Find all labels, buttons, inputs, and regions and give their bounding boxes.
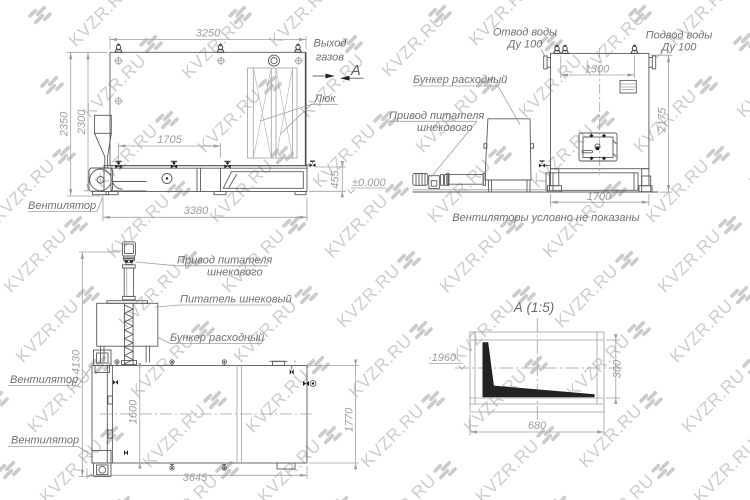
svg-text:3250: 3250 <box>196 28 221 40</box>
svg-text:2350: 2350 <box>59 111 71 137</box>
svg-text:Вентилятор: Вентилятор <box>28 200 96 212</box>
svg-text:2175: 2175 <box>657 107 669 133</box>
svg-text:1700: 1700 <box>587 191 612 203</box>
svg-text:Выход: Выход <box>313 38 346 50</box>
svg-text:Привод питателя: Привод питателя <box>177 255 272 267</box>
svg-text:±0.000: ±0.000 <box>352 177 386 189</box>
svg-text:1770: 1770 <box>344 407 356 432</box>
svg-text:680: 680 <box>528 420 547 432</box>
svg-text:Отвод воды: Отвод воды <box>493 27 557 39</box>
svg-text:шнекового: шнекового <box>207 267 263 279</box>
svg-text:Привод питателя: Привод питателя <box>389 110 484 122</box>
svg-text:А (1:5): А (1:5) <box>513 300 555 315</box>
svg-text:Вентилятор: Вентилятор <box>11 435 79 447</box>
svg-text:300: 300 <box>612 359 624 378</box>
svg-text:Бункер расходный: Бункер расходный <box>170 332 264 344</box>
svg-text:1300: 1300 <box>585 64 610 76</box>
svg-text:1600: 1600 <box>128 399 140 424</box>
svg-text:Ду 100: Ду 100 <box>660 42 698 54</box>
svg-text:4130: 4130 <box>71 349 83 374</box>
svg-text:3645: 3645 <box>183 472 208 484</box>
svg-text:Вентиляторы условно не показан: Вентиляторы условно не показаны <box>452 212 639 224</box>
svg-text:Люк: Люк <box>313 93 336 105</box>
svg-text:газов: газов <box>316 52 344 64</box>
svg-text:Вентилятор: Вентилятор <box>10 374 78 386</box>
svg-text:А: А <box>350 63 361 79</box>
svg-text:шнекового: шнекового <box>417 122 473 134</box>
svg-text:Подвод воды: Подвод воды <box>646 30 713 42</box>
svg-text:2300: 2300 <box>76 109 88 135</box>
svg-text:3380: 3380 <box>184 205 209 217</box>
svg-text:Бункер расходный: Бункер расходный <box>413 74 507 86</box>
svg-text:1705: 1705 <box>157 134 182 146</box>
svg-text:Ду 100: Ду 100 <box>506 39 544 51</box>
svg-text:455: 455 <box>330 169 342 188</box>
svg-text:·1960: ·1960 <box>428 352 457 364</box>
svg-text:Питатель шнековый: Питатель шнековый <box>180 294 292 306</box>
